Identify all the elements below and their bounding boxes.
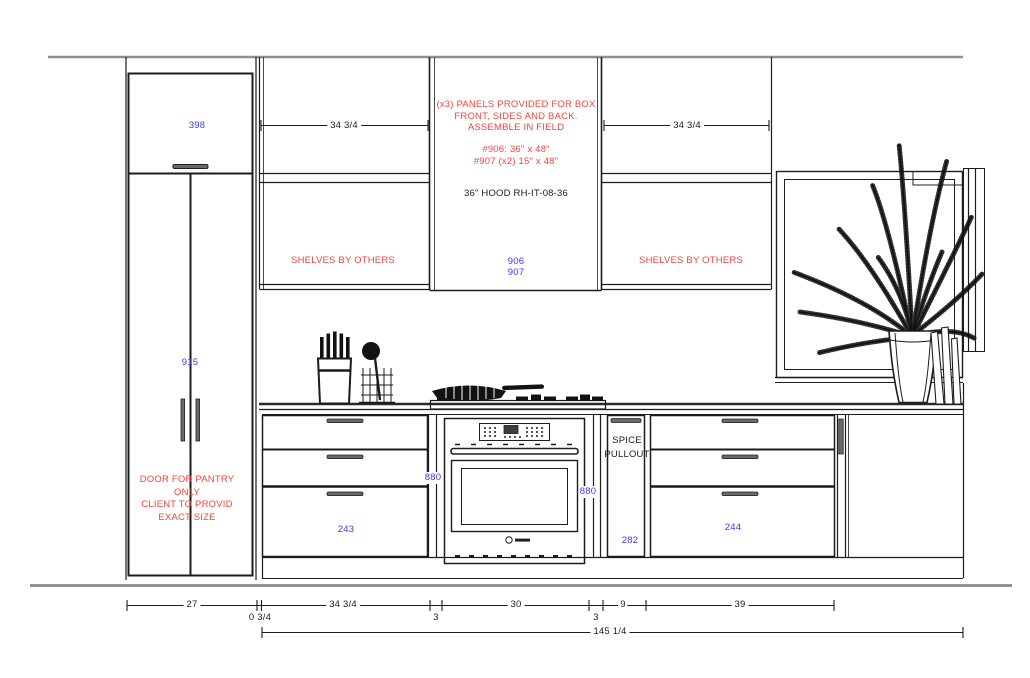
pantry-door-handle-left (181, 399, 185, 441)
knife-block (318, 332, 351, 404)
panel-sizes-note: #906: 36" x 48" #907 (x2) 15" x 48" (474, 144, 558, 167)
oven-logo-icon (506, 537, 512, 543)
dim-9: 9 (618, 599, 627, 611)
dim-overall: 145 1/4 (590, 626, 629, 638)
shelf-left-width-dim: 34 3/4 (327, 120, 361, 132)
dim-27: 27 (184, 599, 201, 611)
panels-note: (x3) PANELS PROVIDED FOR BOX FRONT, SIDE… (436, 99, 595, 134)
shelves-by-others-left: SHELVES BY OTHERS (291, 255, 395, 267)
dim-3-left: 3 (433, 612, 438, 624)
dim-30: 30 (508, 599, 525, 611)
oven-left-code: 880 (424, 472, 442, 484)
leaning-books (931, 327, 961, 404)
base-right-code: 244 (725, 522, 741, 534)
tray-pullout-and-end-panel (838, 383, 964, 578)
base-drawer-stack-right (651, 416, 835, 557)
dim-34-3-4: 34 3/4 (326, 599, 360, 611)
frying-pan (432, 386, 506, 402)
oven-display (504, 426, 518, 434)
countertop (259, 404, 964, 415)
spice-code: 282 (622, 535, 638, 547)
oven-door-glass (462, 469, 568, 525)
base-drawer-stack-left (263, 415, 437, 557)
pantry-upper-handle (173, 165, 208, 169)
pantry-note: DOOR FOR PANTRY ONLY CLIENT TO PROVID EX… (140, 474, 235, 524)
hood-panel-codes: 906 907 (508, 256, 524, 278)
pantry-upper-code: 398 (189, 120, 205, 132)
utensil-rack (359, 342, 395, 403)
dim-39: 39 (732, 599, 749, 611)
pantry-tall-code: 915 (182, 357, 198, 369)
dim-3-right: 3 (593, 612, 598, 624)
wall-oven (445, 415, 601, 564)
spice-pullout-label: SPICE PULLOUT (604, 434, 649, 461)
dim-0-3-4: 0 3/4 (249, 612, 271, 624)
hood-model-label: 36" HOOD RH-IT-08-36 (464, 188, 568, 200)
oven-right-code: 880 (579, 486, 597, 498)
base-left-code: 243 (338, 524, 354, 536)
oven-handle (451, 449, 578, 455)
pantry-door-handle-right (196, 399, 200, 441)
toe-kick (262, 557, 963, 579)
elevation-drawing-canvas: 398 915 DOOR FOR PANTRY ONLY CLIENT TO P… (0, 0, 1030, 678)
window-right-trim (964, 169, 985, 352)
shelf-right-width-dim: 34 3/4 (670, 120, 704, 132)
shelves-by-others-right: SHELVES BY OTHERS (639, 255, 743, 267)
